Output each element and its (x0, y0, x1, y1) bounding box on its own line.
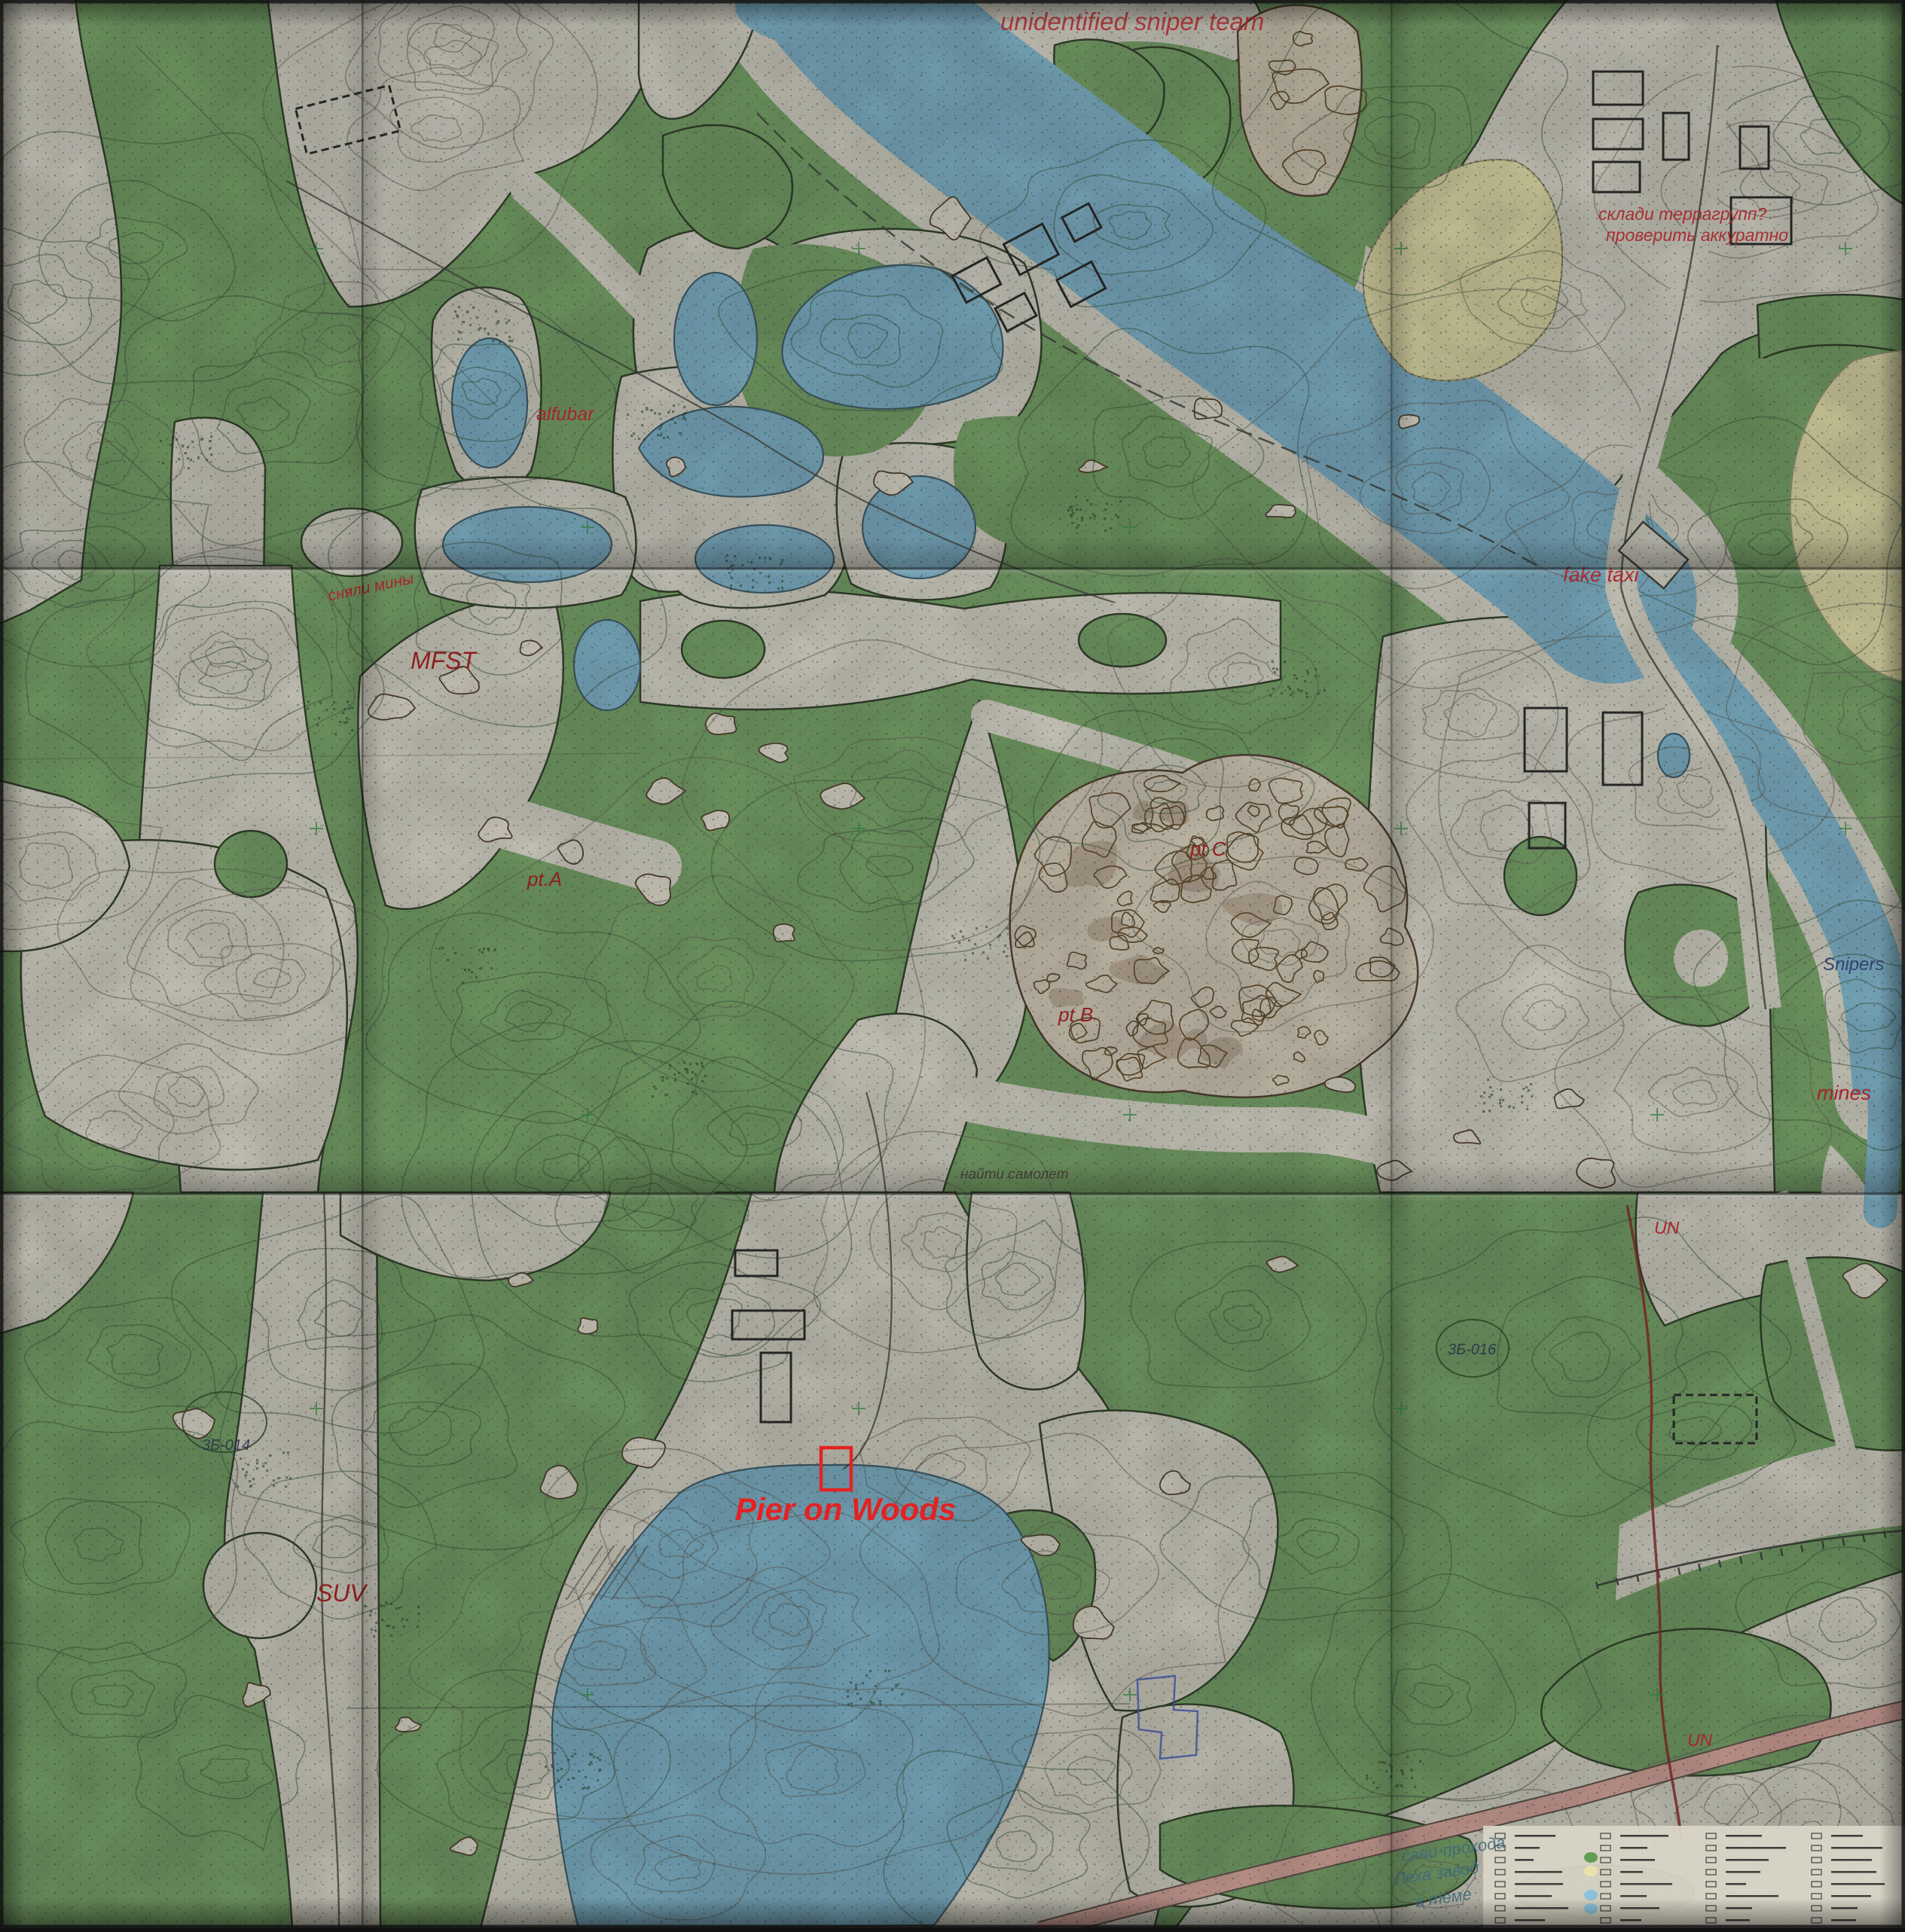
svg-text:Snipers: Snipers (1823, 954, 1884, 975)
svg-text:pt.A: pt.A (527, 868, 562, 890)
svg-text:Pier on Woods: Pier on Woods (735, 1491, 956, 1527)
svg-text:MFST: MFST (411, 647, 478, 674)
svg-text:pt B: pt B (1058, 1003, 1093, 1026)
svg-text:UN: UN (1654, 1218, 1680, 1238)
svg-text:mines: mines (1817, 1082, 1871, 1104)
svg-text:склади террагрупп?: склади террагрупп? (1598, 204, 1767, 224)
svg-text:alfubar: alfubar (536, 404, 595, 425)
svg-text:pt C: pt C (1189, 838, 1226, 860)
svg-text:проверить аккуратно: проверить аккуратно (1606, 225, 1788, 245)
svg-text:UN: UN (1687, 1730, 1713, 1750)
